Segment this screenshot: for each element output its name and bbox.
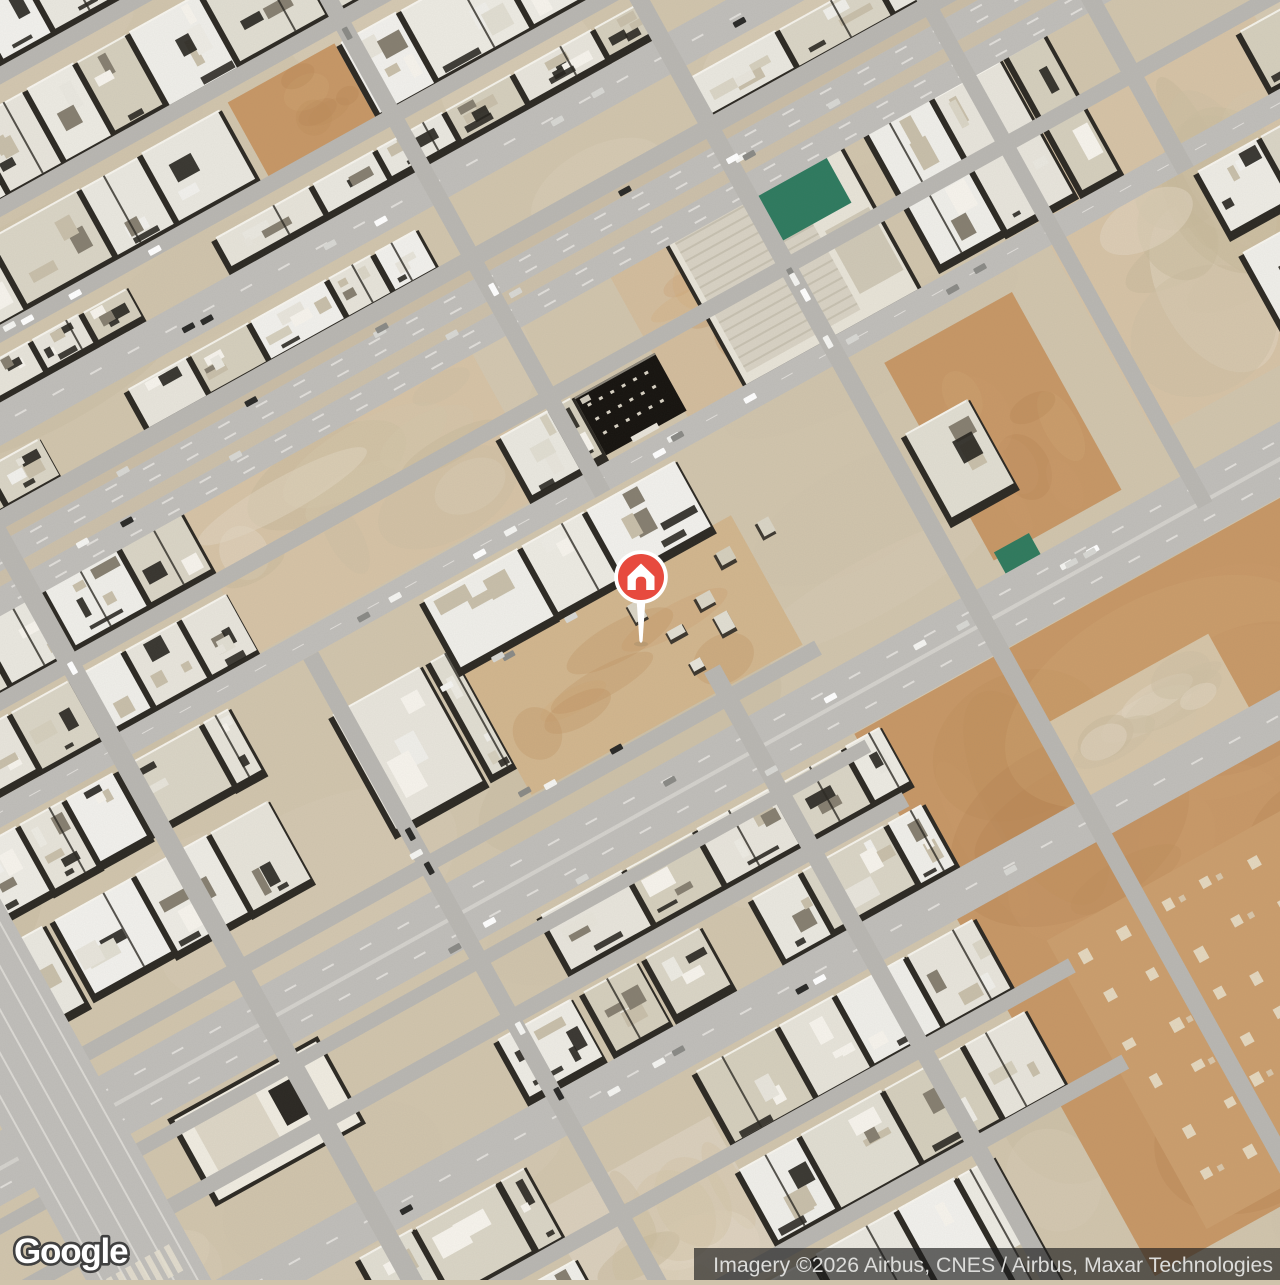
svg-text:Imagery ©2026 Airbus, CNES / A: Imagery ©2026 Airbus, CNES / Airbus, Max… bbox=[713, 1253, 1273, 1277]
svg-text:Google: Google bbox=[14, 1232, 128, 1271]
